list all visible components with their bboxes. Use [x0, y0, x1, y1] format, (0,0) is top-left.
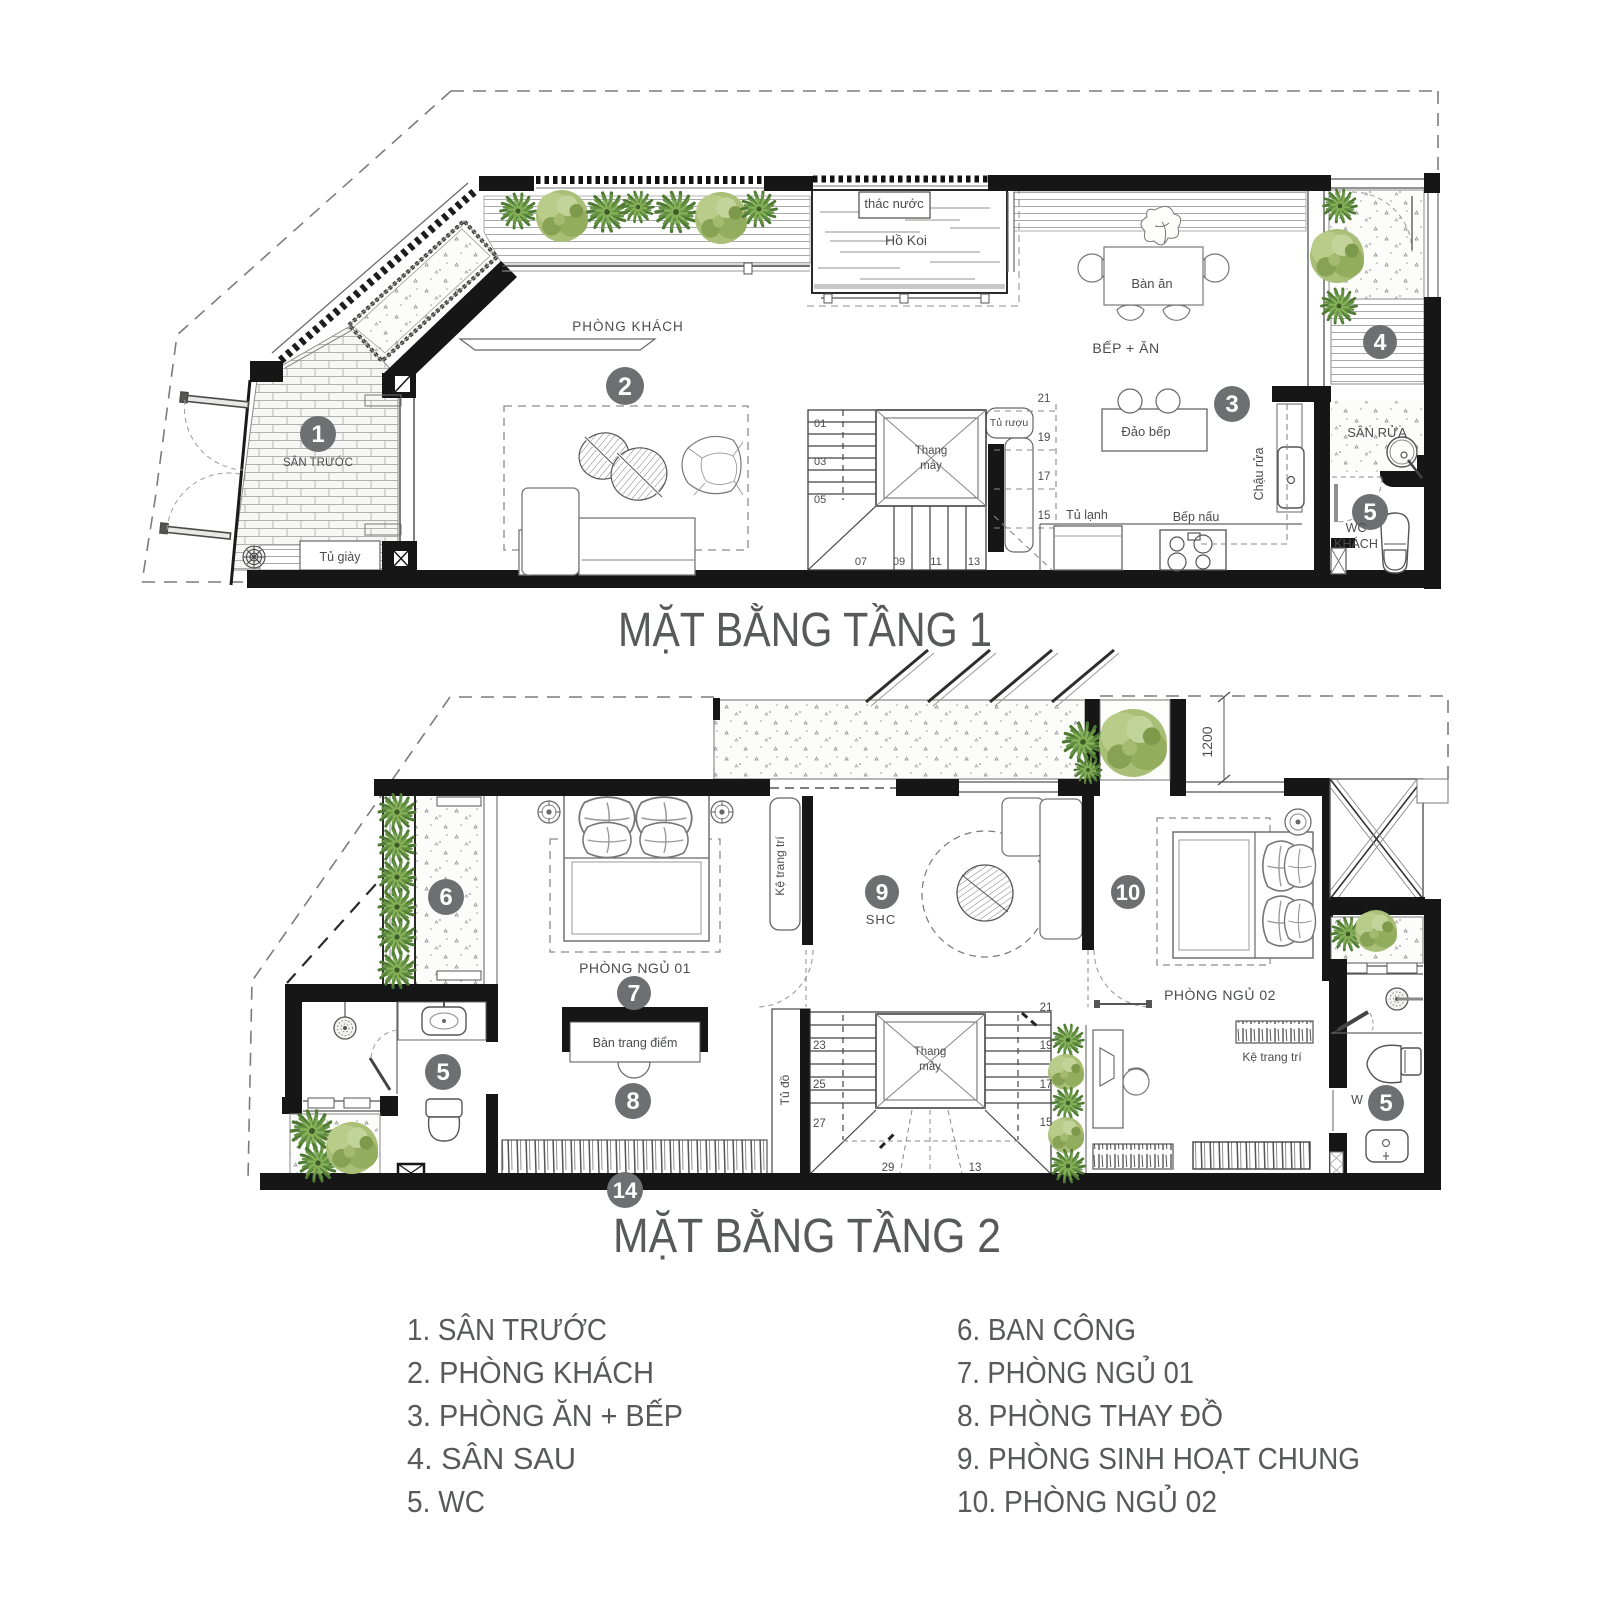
svg-text:Chậu rửa: Chậu rửa — [1252, 448, 1266, 501]
svg-text:11: 11 — [930, 556, 941, 568]
svg-text:15: 15 — [1038, 510, 1051, 522]
svg-text:Bàn ăn: Bàn ăn — [1131, 276, 1172, 291]
svg-text:21: 21 — [1038, 393, 1051, 405]
svg-text:KHÁCH: KHÁCH — [1334, 536, 1378, 551]
svg-text:SÂN RỬA: SÂN RỬA — [1347, 425, 1407, 440]
svg-text:BẾP + ĂN: BẾP + ĂN — [1092, 340, 1159, 356]
svg-text:4. SÂN SAU: 4. SÂN SAU — [407, 1441, 576, 1476]
svg-text:3: 3 — [1225, 391, 1238, 418]
svg-text:Thang: Thang — [914, 1046, 947, 1058]
svg-text:9. PHÒNG SINH HOẠT CHUNG: 9. PHÒNG SINH HOẠT CHUNG — [957, 1441, 1360, 1476]
svg-text:1200: 1200 — [1199, 726, 1215, 757]
svg-text:27: 27 — [813, 1118, 826, 1130]
svg-text:03: 03 — [814, 456, 826, 468]
svg-text:13: 13 — [969, 1162, 982, 1174]
svg-text:MẶT BẰNG TẦNG 2: MẶT BẰNG TẦNG 2 — [613, 1209, 1001, 1263]
svg-text:17: 17 — [1038, 471, 1051, 483]
svg-text:5. WC: 5. WC — [407, 1484, 485, 1519]
svg-text:PHÒNG NGỦ 02: PHÒNG NGỦ 02 — [1164, 986, 1276, 1003]
svg-text:Hồ Koi: Hồ Koi — [885, 232, 927, 248]
svg-text:23: 23 — [813, 1040, 826, 1052]
svg-text:6: 6 — [439, 884, 452, 911]
svg-text:Kệ trang trí: Kệ trang trí — [1242, 1050, 1302, 1064]
svg-text:5: 5 — [1379, 1090, 1392, 1117]
svg-text:17: 17 — [1040, 1079, 1053, 1091]
svg-text:10: 10 — [1116, 880, 1140, 905]
svg-text:máy: máy — [919, 1061, 941, 1073]
svg-text:SHC: SHC — [866, 912, 896, 927]
svg-text:PHÒNG NGỦ 01: PHÒNG NGỦ 01 — [579, 959, 691, 976]
svg-text:10. PHÒNG NGỦ 02: 10. PHÒNG NGỦ 02 — [957, 1483, 1217, 1519]
svg-text:Tủ rượu: Tủ rượu — [990, 417, 1029, 429]
svg-text:Tủ đồ: Tủ đồ — [778, 1074, 792, 1105]
svg-text:29: 29 — [882, 1162, 895, 1174]
svg-text:Tủ lạnh: Tủ lạnh — [1066, 508, 1108, 522]
svg-text:9: 9 — [876, 879, 889, 905]
svg-text:4: 4 — [1374, 329, 1387, 355]
svg-text:Bàn trang điểm: Bàn trang điểm — [593, 1036, 678, 1050]
svg-text:05: 05 — [814, 494, 826, 506]
svg-text:07: 07 — [855, 556, 867, 568]
svg-text:15: 15 — [1040, 1117, 1053, 1129]
svg-text:5: 5 — [436, 1059, 449, 1086]
svg-text:1: 1 — [311, 421, 324, 448]
svg-text:PHÒNG KHÁCH: PHÒNG KHÁCH — [572, 319, 684, 334]
svg-text:2: 2 — [618, 373, 632, 401]
svg-text:thác nước: thác nước — [864, 196, 924, 211]
svg-text:8: 8 — [626, 1088, 639, 1115]
svg-text:WC: WC — [1346, 521, 1367, 535]
svg-text:01: 01 — [814, 418, 826, 430]
svg-text:SÂN TRƯỚC: SÂN TRƯỚC — [283, 456, 353, 469]
svg-text:Tủ giày: Tủ giày — [320, 550, 362, 564]
svg-text:máy: máy — [920, 460, 942, 472]
svg-text:Thang: Thang — [915, 445, 948, 457]
svg-text:25: 25 — [813, 1079, 826, 1091]
svg-text:2. PHÒNG KHÁCH: 2. PHÒNG KHÁCH — [407, 1355, 654, 1390]
svg-text:09: 09 — [893, 556, 905, 568]
svg-text:21: 21 — [1040, 1002, 1053, 1014]
svg-text:8. PHÒNG THAY ĐỒ: 8. PHÒNG THAY ĐỒ — [957, 1397, 1223, 1433]
svg-text:7: 7 — [628, 980, 641, 1006]
svg-text:7. PHÒNG NGỦ 01: 7. PHÒNG NGỦ 01 — [957, 1354, 1194, 1390]
svg-text:Đảo bếp: Đảo bếp — [1121, 424, 1170, 439]
svg-text:MẶT BẰNG TẦNG 1: MẶT BẰNG TẦNG 1 — [618, 603, 992, 657]
svg-text:19: 19 — [1040, 1040, 1053, 1052]
svg-text:Kệ trang trí: Kệ trang trí — [773, 836, 787, 896]
svg-text:14: 14 — [613, 1178, 638, 1203]
svg-text:1. SÂN TRƯỚC: 1. SÂN TRƯỚC — [407, 1312, 607, 1347]
svg-text:3. PHÒNG ĂN + BẾP: 3. PHÒNG ĂN + BẾP — [407, 1398, 683, 1433]
svg-text:19: 19 — [1038, 432, 1051, 444]
svg-text:6. BAN CÔNG: 6. BAN CÔNG — [957, 1312, 1136, 1347]
svg-text:W: W — [1351, 1093, 1363, 1107]
svg-text:Bếp nấu: Bếp nấu — [1173, 510, 1220, 524]
svg-text:13: 13 — [968, 556, 980, 568]
